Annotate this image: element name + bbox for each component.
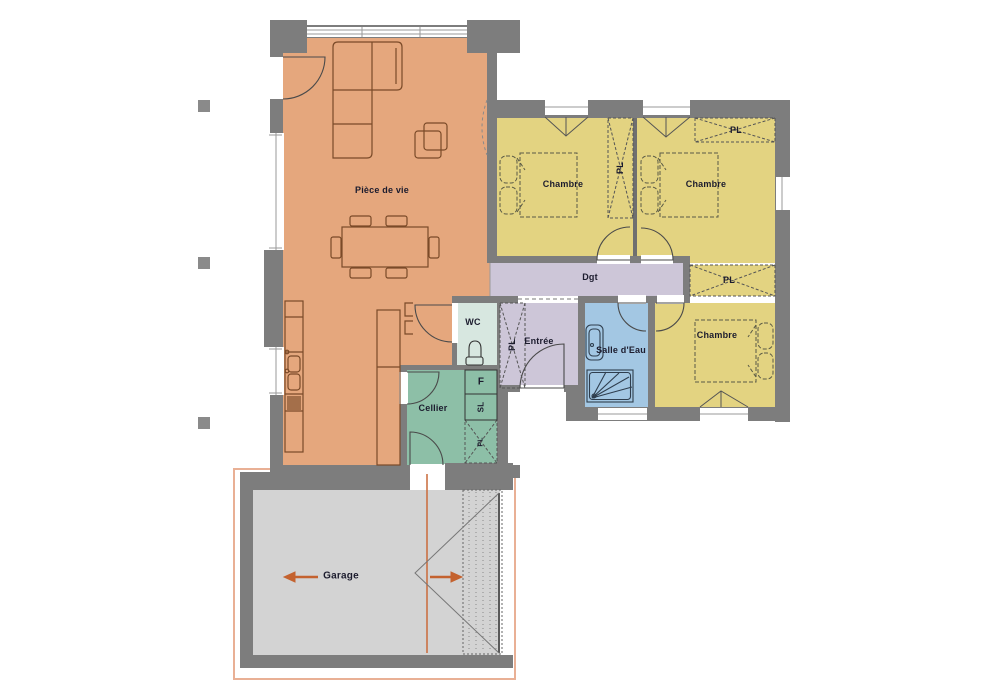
label-garage: Garage bbox=[323, 571, 359, 582]
wall bbox=[497, 256, 690, 263]
label-fridge: F bbox=[478, 377, 484, 388]
wall bbox=[240, 472, 410, 490]
site-marker bbox=[198, 100, 210, 112]
wall bbox=[400, 365, 500, 370]
room-bedroom-1 bbox=[497, 118, 633, 263]
wall bbox=[445, 463, 513, 490]
room-garage bbox=[253, 490, 500, 655]
site-marker bbox=[198, 257, 210, 269]
label-pantry: Cellier bbox=[419, 403, 448, 413]
label-living-room: Pièce de vie bbox=[355, 185, 409, 195]
wall bbox=[452, 342, 457, 365]
wall bbox=[775, 100, 790, 422]
wall-bedroom-divider bbox=[633, 118, 637, 263]
wall bbox=[487, 25, 497, 263]
label-closet-entrance: PL bbox=[507, 339, 517, 351]
wall bbox=[400, 365, 407, 465]
label-laundry: SL bbox=[477, 402, 486, 413]
label-bedroom-3: Chambre bbox=[697, 330, 737, 340]
label-wc: WC bbox=[465, 317, 480, 327]
wall bbox=[566, 407, 790, 421]
wall bbox=[508, 385, 520, 392]
label-closet-bedroom-2: PL bbox=[730, 125, 742, 135]
wall bbox=[580, 296, 655, 303]
wall bbox=[240, 655, 513, 668]
wall bbox=[578, 296, 585, 392]
wall bbox=[240, 472, 253, 668]
wall bbox=[264, 250, 283, 347]
floor-plan: Pièce de vie Chambre Chambre Chambre Dgt… bbox=[0, 0, 1000, 692]
label-entrance: Entrée bbox=[524, 336, 553, 346]
label-closet-pantry: PL bbox=[478, 437, 485, 446]
wall bbox=[497, 296, 500, 392]
wall bbox=[655, 296, 690, 303]
label-bedroom-2: Chambre bbox=[686, 179, 726, 189]
wall bbox=[497, 100, 790, 118]
wall bbox=[648, 296, 655, 411]
label-hallway: Dgt bbox=[582, 272, 598, 282]
room-bedroom-3 bbox=[655, 303, 775, 410]
room-bedroom-2 bbox=[637, 118, 775, 263]
label-closet-bedroom-divider: PL bbox=[615, 162, 625, 174]
site-marker bbox=[198, 417, 210, 429]
room-bathroom bbox=[585, 303, 648, 408]
wall bbox=[452, 296, 518, 303]
label-closet-bedroom-3: PL bbox=[723, 275, 735, 285]
label-bedroom-1: Chambre bbox=[543, 179, 583, 189]
label-bathroom: Salle d'Eau bbox=[596, 345, 646, 355]
room-wc bbox=[457, 303, 497, 365]
